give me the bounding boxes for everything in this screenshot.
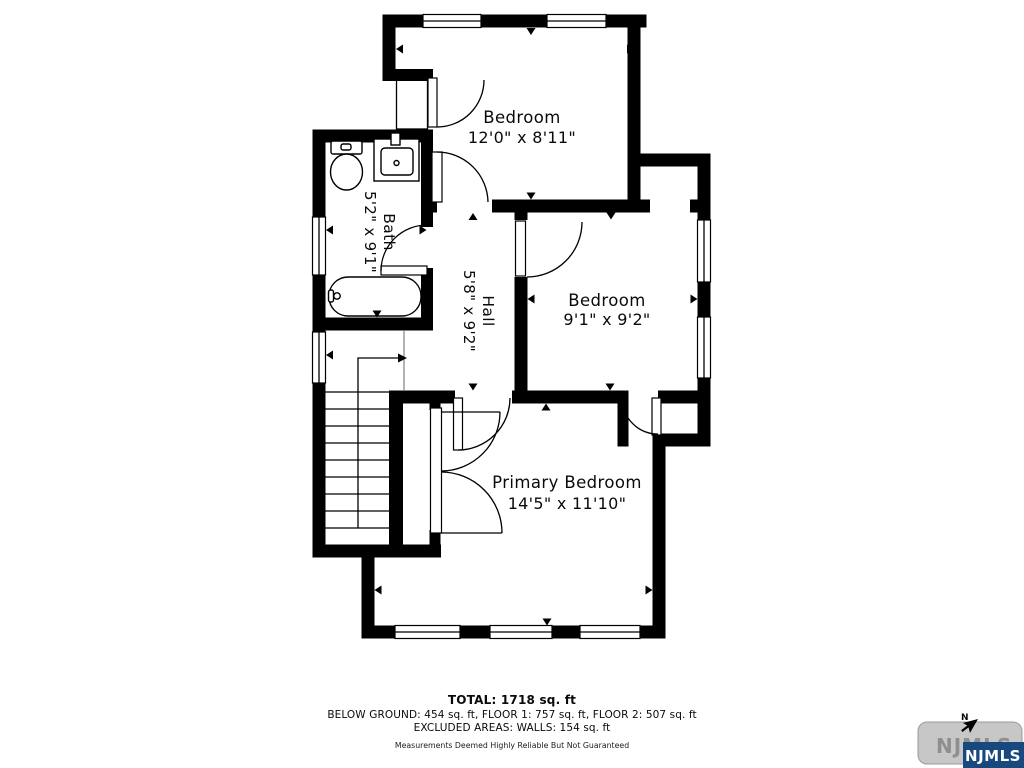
svg-text:9'1" x 9'2": 9'1" x 9'2"	[563, 310, 650, 329]
sink	[374, 133, 419, 181]
room-label-hall: Hall 5'8" x 9'2"	[460, 270, 497, 352]
room-label-primary-bedroom: Primary Bedroom 14'5" x 11'10"	[492, 473, 642, 513]
svg-text:Bedroom: Bedroom	[483, 108, 560, 127]
room-label-bath: Bath 5'2" x 9'1"	[361, 191, 398, 273]
compass-north-label: N	[961, 713, 969, 723]
window	[313, 332, 326, 383]
toilet	[331, 141, 363, 190]
svg-text:Hall: Hall	[479, 295, 497, 326]
footer-disclaimer: Measurements Deemed Highly Reliable But …	[395, 741, 629, 750]
njmls-logo: NJMLS NJMLS N	[918, 713, 1024, 768]
window	[547, 15, 606, 28]
door	[516, 221, 583, 277]
svg-text:Bath: Bath	[380, 213, 398, 251]
svg-text:5'8" x 9'2": 5'8" x 9'2"	[460, 270, 478, 352]
svg-text:Primary Bedroom: Primary Bedroom	[492, 473, 642, 492]
svg-text:12'0" x 8'11": 12'0" x 8'11"	[468, 128, 576, 147]
window	[313, 217, 326, 275]
window	[490, 626, 552, 639]
svg-text:5'2" x 9'1": 5'2" x 9'1"	[361, 191, 379, 273]
window	[423, 15, 481, 28]
bathtub	[329, 277, 422, 316]
door	[397, 76, 485, 129]
room-label-bedroom-middle: Bedroom 9'1" x 9'2"	[563, 291, 650, 329]
closet-double-doors	[431, 408, 503, 533]
footer-excluded: EXCLUDED AREAS: WALLS: 154 sq. ft	[414, 722, 611, 734]
window	[395, 626, 460, 639]
window	[698, 220, 711, 282]
door	[432, 152, 488, 202]
footer: TOTAL: 1718 sq. ft BELOW GROUND: 454 sq.…	[327, 693, 696, 750]
footer-total: TOTAL: 1718 sq. ft	[448, 693, 576, 707]
floor-plan: Bedroom 12'0" x 8'11" Bedroom 9'1" x 9'2…	[0, 0, 1024, 768]
svg-text:Bedroom: Bedroom	[568, 291, 645, 310]
footer-breakdown: BELOW GROUND: 454 sq. ft, FLOOR 1: 757 s…	[327, 709, 696, 721]
room-label-bedroom-top: Bedroom 12'0" x 8'11"	[468, 108, 576, 147]
window	[580, 626, 640, 639]
svg-text:14'5" x 11'10": 14'5" x 11'10"	[508, 494, 627, 513]
door	[454, 398, 511, 450]
window	[698, 317, 711, 378]
njmls-badge-label: NJMLS	[965, 747, 1021, 765]
